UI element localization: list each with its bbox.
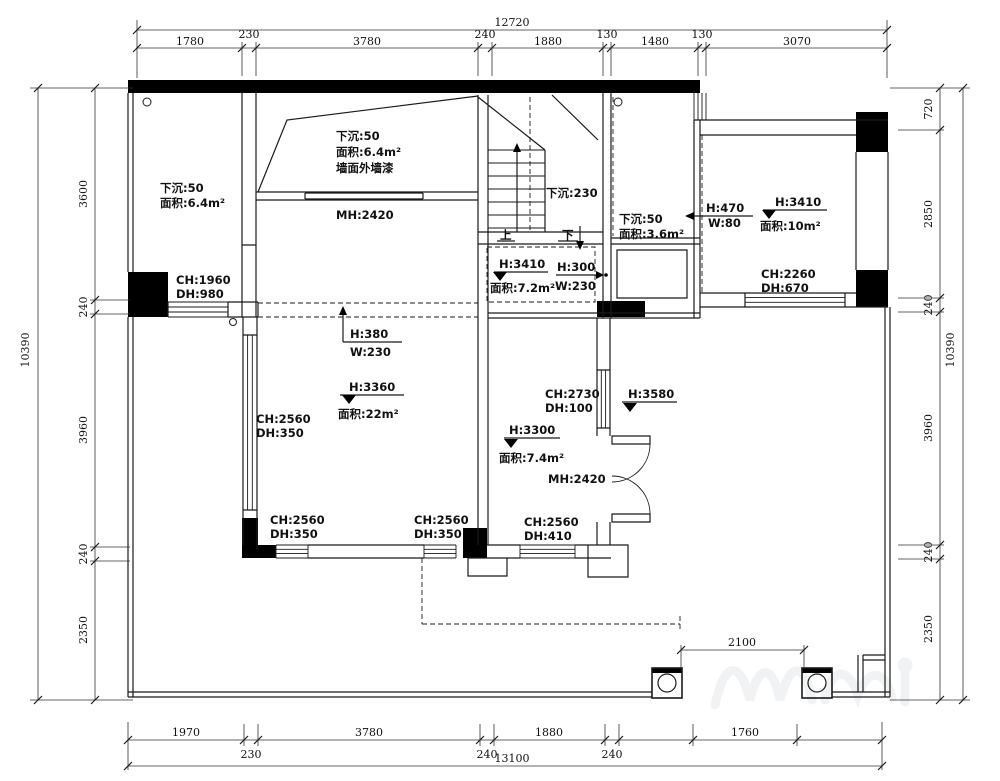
marker-circle xyxy=(143,98,151,106)
stair-up-label: 上 xyxy=(500,228,512,242)
dimension-chain-top: 12720 1780 230 3780 240 1880 130 1480 13… xyxy=(176,16,811,48)
room-label: DH:350 xyxy=(270,527,318,541)
dim-label: 13100 xyxy=(495,752,530,765)
dim-label: 2350 xyxy=(922,615,935,643)
dim-label: 10390 xyxy=(944,333,957,368)
room-label: CH:2560 xyxy=(256,412,311,426)
room-label: H:3410 xyxy=(499,257,545,271)
room-label: 下沉:50 xyxy=(619,212,663,226)
room-annotations: 下沉:50 面积:6.4m² CH:1960 DH:980 下沉:50 面积:6… xyxy=(160,129,821,543)
dim-label: 230 xyxy=(241,748,262,761)
marker-circle xyxy=(230,319,237,326)
dim-label: 130 xyxy=(692,28,713,41)
room-label: 面积:22m² xyxy=(338,407,399,421)
room-label: W:230 xyxy=(555,279,596,293)
dimension-ticks xyxy=(34,26,967,770)
dim-label: 240 xyxy=(77,297,90,318)
room-label: 下沉:230 xyxy=(546,186,598,200)
room-label: H:470 xyxy=(706,201,744,215)
columns-span-label: 2100 xyxy=(728,636,756,649)
wall-lines xyxy=(128,93,890,697)
dim-label: 240 xyxy=(602,748,623,761)
opening-dot xyxy=(604,273,608,277)
dim-label: 130 xyxy=(597,28,618,41)
dim-label: 12720 xyxy=(495,16,530,29)
room-label: 面积:6.4m² xyxy=(160,196,225,210)
dim-label: 10390 xyxy=(19,333,32,368)
dimension-chain-bottom: 1970 230 3780 240 1880 240 1760 13100 xyxy=(172,726,759,765)
room-label: MH:2420 xyxy=(548,472,606,486)
room-label: 面积:7.2m² xyxy=(490,281,555,295)
column-circle xyxy=(658,674,676,692)
room-label: 面积:6.4m² xyxy=(336,145,401,159)
dim-label: 240 xyxy=(922,295,935,316)
room-label: DH:100 xyxy=(545,401,593,415)
dim-label: 1780 xyxy=(176,35,204,48)
room-label: W:80 xyxy=(708,216,741,230)
dim-label: 1480 xyxy=(641,35,669,48)
dim-label: 720 xyxy=(922,99,935,120)
dim-label: 1970 xyxy=(172,726,200,739)
stair-down-label: 下 xyxy=(562,228,574,242)
dim-label: 240 xyxy=(922,542,935,563)
dimension-chain-right: 720 2850 240 3960 240 2350 10390 xyxy=(922,99,957,644)
room-label: DH:350 xyxy=(414,527,462,541)
dim-label: 230 xyxy=(239,28,260,41)
floor-plan-svg: 12720 1780 230 3780 240 1880 130 1480 13… xyxy=(0,0,1000,781)
dim-label: 3600 xyxy=(77,180,90,208)
room-label: CH:1960 xyxy=(176,273,231,287)
dim-label: 1760 xyxy=(731,726,759,739)
double-door-arcs xyxy=(612,444,650,514)
dimension-chain-left: 3600 240 3960 240 2350 10390 xyxy=(19,180,90,644)
room-label: CH:2560 xyxy=(524,515,579,529)
room-label: CH:2730 xyxy=(545,387,600,401)
dim-label: 2350 xyxy=(77,616,90,644)
room-label: 面积:7.4m² xyxy=(499,451,564,465)
dim-label: 3070 xyxy=(783,35,811,48)
room-label: 墙面外墙漆 xyxy=(336,161,394,175)
room-label: DH:980 xyxy=(176,287,224,301)
room-label: H:3300 xyxy=(509,423,555,437)
room-label: DH:670 xyxy=(761,281,809,295)
marker-circle xyxy=(614,98,622,106)
room-label: H:3580 xyxy=(628,387,674,401)
room-label: MH:2420 xyxy=(336,208,394,222)
dim-label: 1880 xyxy=(535,726,563,739)
room-label: 下沉:50 xyxy=(160,181,204,195)
room-label: 面积:10m² xyxy=(760,219,821,233)
room-label: DH:410 xyxy=(524,529,572,543)
dim-label: 3960 xyxy=(922,414,935,442)
room-label: H:300 xyxy=(557,260,595,274)
room-label: CH:2560 xyxy=(270,513,325,527)
dim-label: 3780 xyxy=(355,726,383,739)
room-label: DH:350 xyxy=(256,426,304,440)
dimension-lines xyxy=(30,20,970,770)
room-label: 下沉:50 xyxy=(336,129,380,143)
room-label: 面积:3.6m² xyxy=(619,227,684,241)
room-label: H:3360 xyxy=(349,380,395,394)
room-label: H:3410 xyxy=(775,195,821,209)
room-label: W:230 xyxy=(350,345,391,359)
dim-label: 2850 xyxy=(922,200,935,228)
dim-label: 1880 xyxy=(534,35,562,48)
dim-label: 240 xyxy=(475,28,496,41)
dim-label: 3780 xyxy=(353,35,381,48)
dim-label: 240 xyxy=(77,544,90,565)
floor-plan-page: 12720 1780 230 3780 240 1880 130 1480 13… xyxy=(0,0,1000,781)
room-label: CH:2260 xyxy=(761,267,816,281)
room-label: CH:2560 xyxy=(414,513,469,527)
room-label: H:380 xyxy=(350,327,388,341)
dim-label: 3960 xyxy=(77,416,90,444)
